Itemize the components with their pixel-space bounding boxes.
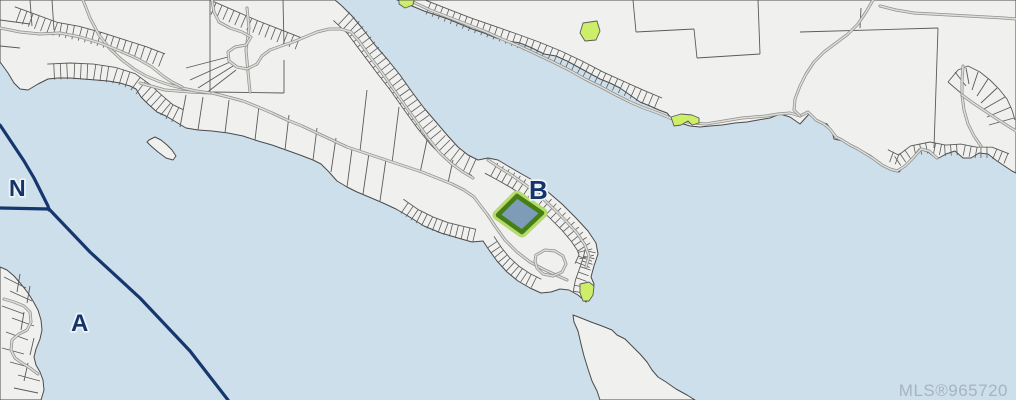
zone-label-a: A xyxy=(71,310,88,337)
zone-label-b: B xyxy=(529,175,548,205)
mls-map[interactable]: N A B MLS®965720 xyxy=(0,0,1016,400)
zone-label-n: N xyxy=(9,175,26,201)
map-viewport[interactable]: N A B MLS®965720 xyxy=(0,0,1016,400)
listing-parcel[interactable] xyxy=(580,21,600,41)
mls-watermark: MLS®965720 xyxy=(899,381,1008,400)
